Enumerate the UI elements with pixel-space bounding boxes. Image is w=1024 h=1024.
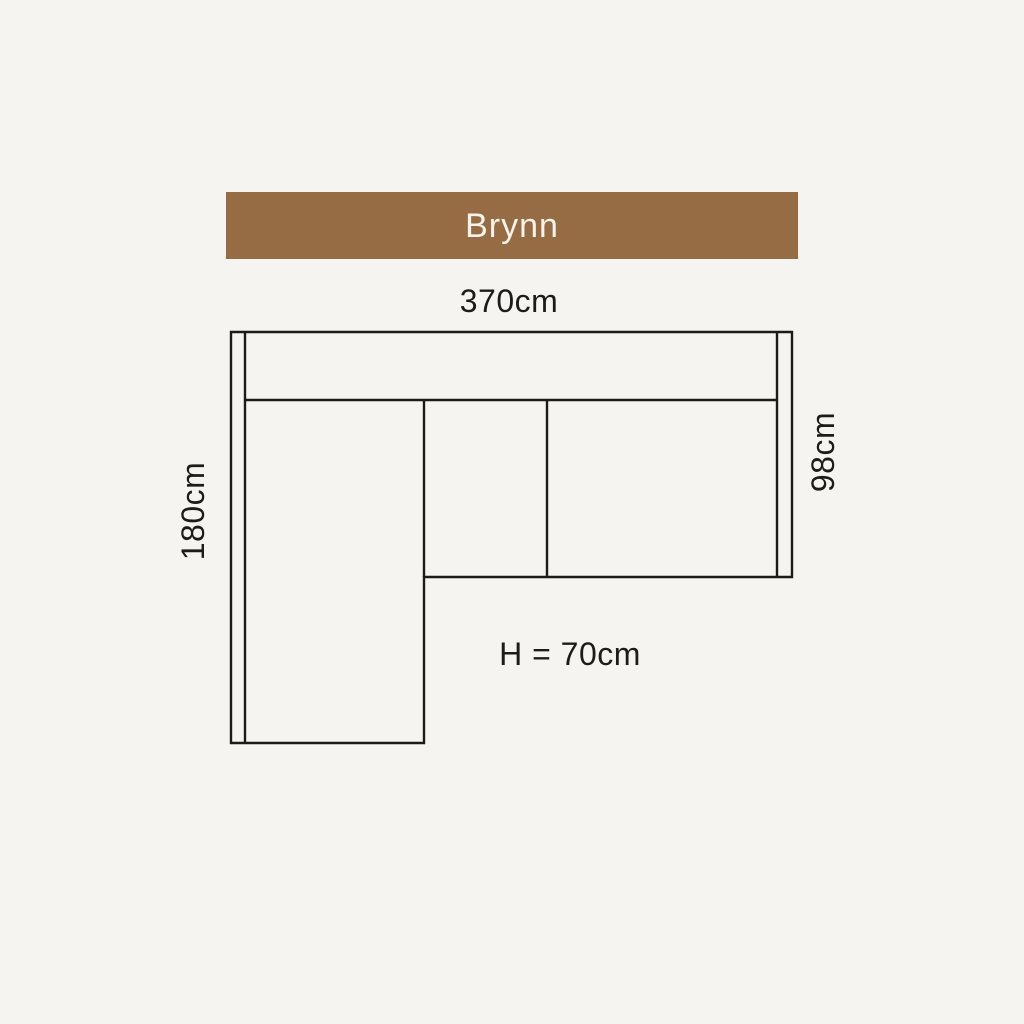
sofa-outline-svg (0, 0, 1024, 1024)
dimension-label-height: H = 70cm (499, 638, 641, 670)
sofa-outer-outline (231, 332, 792, 743)
dimension-label-sofa-depth: 98cm (807, 412, 839, 492)
page: Brynn 370cm 180cm 98cm H = 70cm (0, 0, 1024, 1024)
dimension-label-total-width: 370cm (460, 285, 559, 317)
dimension-label-chaise-depth: 180cm (177, 462, 209, 561)
